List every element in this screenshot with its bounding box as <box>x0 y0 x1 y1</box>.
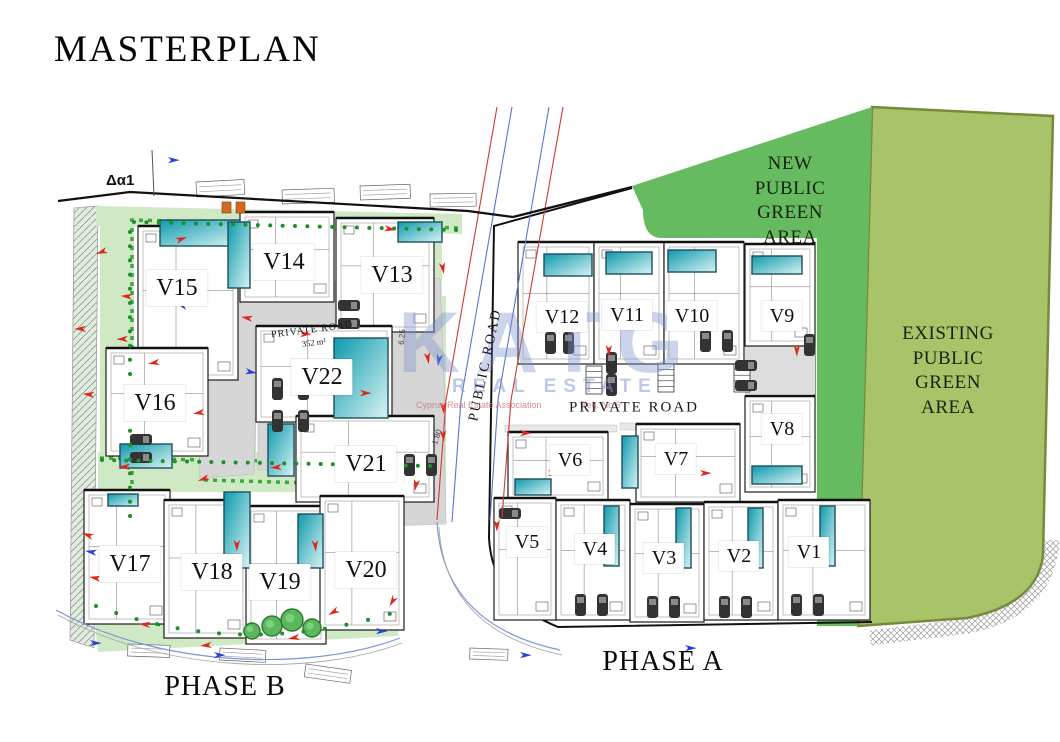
hedge-dot <box>268 223 272 227</box>
hedge-dot <box>259 632 263 636</box>
green-area-label-line: AREA <box>902 396 994 421</box>
villa-label-v15: V15 <box>146 270 207 306</box>
green-area-label-line: NEW <box>755 152 826 177</box>
hedge-dot <box>155 622 159 626</box>
car-icon <box>735 360 757 371</box>
hedge-dot <box>209 460 213 464</box>
hedge-dot <box>206 222 210 226</box>
villa-label-v16: V16 <box>124 385 185 421</box>
boundary-line <box>468 211 513 217</box>
car-icon <box>700 330 711 352</box>
survey-point-label: Δα1 <box>106 172 134 189</box>
survey-tag <box>196 179 245 196</box>
car-windshield <box>577 597 584 603</box>
green-area-label-line: PUBLIC <box>902 347 994 372</box>
swimming-pool <box>228 222 250 288</box>
car-icon <box>719 596 730 618</box>
villa-label-v8: V8 <box>762 414 802 444</box>
dimension-label-left: 6.25 <box>397 329 407 345</box>
swimming-pool <box>752 466 802 484</box>
survey-tag-box <box>430 193 476 207</box>
hedge-dot <box>128 429 132 433</box>
car-windshield <box>649 599 656 605</box>
new-public-green-area-label: NEWPUBLICGREENAREA <box>755 152 826 251</box>
car-icon <box>597 594 608 616</box>
villa-label-v20: V20 <box>335 552 396 588</box>
green-area-label-line: GREEN <box>902 371 994 396</box>
hedge-dot <box>124 458 128 462</box>
tree-icon <box>247 626 253 632</box>
phase-b-label: PHASE B <box>164 671 285 703</box>
car-icon <box>669 596 680 618</box>
hedge-dot <box>282 461 286 465</box>
page-title: MASTERPLAN <box>54 28 321 71</box>
hedge-dot <box>404 227 408 231</box>
hedge-dot <box>416 464 420 468</box>
hedge-dot <box>256 223 260 227</box>
swimming-pool <box>622 436 638 488</box>
villa-label-v4: V4 <box>575 534 615 564</box>
villa-label-v17: V17 <box>99 546 160 582</box>
survey-tag <box>304 664 351 683</box>
hedge-dot <box>355 226 359 230</box>
car-windshield <box>671 599 678 605</box>
hedge-dot <box>128 244 132 248</box>
tree-icon <box>286 614 295 623</box>
green-area-label-line: GREEN <box>755 201 826 226</box>
car-icon <box>804 334 815 356</box>
hedge-dot <box>331 462 335 466</box>
villa-label-v5: V5 <box>507 527 547 557</box>
planter-icon <box>222 202 231 213</box>
survey-tag-box <box>360 184 410 200</box>
hedge-dot <box>128 344 132 348</box>
hedge-dot <box>281 224 285 228</box>
hedge-dot <box>258 461 262 465</box>
survey-tag <box>470 648 508 660</box>
boundary-line <box>513 187 632 217</box>
swimming-pool <box>108 494 138 506</box>
hedge-dot <box>128 329 132 333</box>
hedge-dot <box>219 222 223 226</box>
car-windshield <box>702 333 709 339</box>
hedge-dot <box>94 604 98 608</box>
survey-tag-box <box>196 179 245 196</box>
swimming-pool <box>668 250 716 272</box>
hedge-dot <box>231 222 235 226</box>
hedge-dot <box>128 358 132 362</box>
hedge-dot <box>128 514 132 518</box>
tree-icon <box>306 622 313 629</box>
car-windshield <box>599 597 606 603</box>
hedge-dot <box>128 315 132 319</box>
car-windshield <box>300 413 307 419</box>
phase-a-private-road-label: PRIVATE ROAD <box>569 400 699 417</box>
villa-label-v21: V21 <box>335 446 396 482</box>
dimension-leader <box>152 150 154 196</box>
car-windshield <box>721 599 728 605</box>
hedge-dot <box>221 460 225 464</box>
car-windshield <box>428 457 435 463</box>
hedge-dot <box>128 471 132 475</box>
hedge-dot <box>294 462 298 466</box>
hedge-dot <box>301 630 305 634</box>
hedge-dot <box>100 458 104 462</box>
hedge-dot <box>176 626 180 630</box>
hedge-dot <box>319 462 323 466</box>
hedge-dot <box>136 459 140 463</box>
car-windshield <box>748 362 754 369</box>
hedge-dot <box>404 464 408 468</box>
swimming-pool <box>515 479 551 495</box>
tree-icon <box>266 620 274 628</box>
car-windshield <box>406 457 413 463</box>
car-icon <box>298 410 309 432</box>
car-windshield <box>351 302 357 309</box>
swimming-pool <box>544 254 592 276</box>
hedge-dot <box>380 226 384 230</box>
hedge-dot <box>417 227 421 231</box>
car-windshield <box>748 382 754 389</box>
planter-icon <box>236 202 245 213</box>
green-area-label-line: EXISTING <box>902 322 994 347</box>
hedge-dot <box>293 224 297 228</box>
hedge-dot <box>197 460 201 464</box>
hedge-dot <box>128 287 132 291</box>
villa-label-v22: V22 <box>291 359 352 395</box>
car-icon <box>272 410 283 432</box>
hedge-dot <box>144 220 148 224</box>
car-icon <box>575 594 586 616</box>
survey-tag <box>430 193 476 207</box>
car-icon <box>272 378 283 400</box>
villa-label-v6: V6 <box>550 445 590 475</box>
swimming-pool <box>298 514 323 568</box>
villa-label-v14: V14 <box>253 244 314 280</box>
hedge-dot <box>128 443 132 447</box>
car-windshield <box>743 599 750 605</box>
hedge-dot <box>429 227 433 231</box>
car-windshield <box>724 333 731 339</box>
car-icon <box>735 380 757 391</box>
hedge-dot <box>196 629 200 633</box>
hedge-dot <box>388 612 392 616</box>
hedge-dot <box>128 500 132 504</box>
survey-tag <box>360 184 410 200</box>
swimming-pool <box>752 256 802 274</box>
hedge-dot <box>114 611 118 615</box>
hedge-dot <box>246 461 250 465</box>
swimming-pool <box>398 222 442 242</box>
hedge-dot <box>128 372 132 376</box>
green-area-label-line: PUBLIC <box>755 177 826 202</box>
hedge-dot <box>161 459 165 463</box>
villa-label-v9: V9 <box>762 301 802 331</box>
hedge-dot <box>307 462 311 466</box>
hedge-dot <box>323 627 327 631</box>
existing-public-green-area-label: EXISTINGPUBLICGREENAREA <box>902 322 994 421</box>
survey-tag-box <box>470 648 508 660</box>
car-windshield <box>806 337 813 343</box>
car-windshield <box>143 454 149 461</box>
hedge-dot <box>442 228 446 232</box>
hedge-dot <box>194 222 198 226</box>
hedge-dot <box>367 226 371 230</box>
car-icon <box>647 596 658 618</box>
hedge-dot <box>305 224 309 228</box>
car-icon <box>338 300 360 311</box>
survey-tag <box>219 648 266 662</box>
car-icon <box>741 596 752 618</box>
car-icon <box>722 330 733 352</box>
hedge-dot <box>318 225 322 229</box>
hedge-dot <box>343 225 347 229</box>
villa-label-v13: V13 <box>361 257 422 293</box>
arrow-marker <box>168 157 180 163</box>
villa-label-v12: V12 <box>537 302 587 332</box>
hedge-dot <box>112 458 116 462</box>
hedge-dot <box>217 631 221 635</box>
villa-label-v19: V19 <box>249 564 310 600</box>
car-windshield <box>512 510 518 517</box>
hedge-dot <box>135 617 139 621</box>
survey-tag-box <box>219 648 266 662</box>
green-area-label-line: AREA <box>755 226 826 251</box>
hedge-dot <box>234 460 238 464</box>
hedge-dot <box>128 457 132 461</box>
hedge-dot <box>185 460 189 464</box>
car-windshield <box>143 436 149 443</box>
hedge-dot <box>132 220 136 224</box>
car-icon <box>130 434 152 445</box>
hedge-dot <box>280 632 284 636</box>
hedge-dot <box>344 623 348 627</box>
swimming-pool <box>606 252 652 274</box>
hedge-dot <box>128 258 132 262</box>
car-windshield <box>274 413 281 419</box>
car-windshield <box>274 381 281 387</box>
villa-label-v10: V10 <box>667 301 717 331</box>
car-windshield <box>793 597 800 603</box>
hedge-dot <box>128 230 132 234</box>
villa-label-v18: V18 <box>181 554 242 590</box>
villa-label-v3: V3 <box>644 543 684 573</box>
hedge-dot <box>243 223 247 227</box>
hedge-dot <box>173 459 177 463</box>
villa-label-v7: V7 <box>656 444 696 474</box>
villa-label-v2: V2 <box>719 541 759 571</box>
car-icon <box>791 594 802 616</box>
hedge-dot <box>330 225 334 229</box>
hedge-dot <box>238 632 242 636</box>
car-windshield <box>815 597 822 603</box>
hedge-dot <box>428 464 432 468</box>
hedge-dot <box>366 618 370 622</box>
hedge-dot <box>149 459 153 463</box>
hedge-dot <box>169 221 173 225</box>
hedge-dot <box>182 221 186 225</box>
car-icon <box>813 594 824 616</box>
hedge-dot <box>128 273 132 277</box>
hedge-dot <box>454 228 458 232</box>
phase-a-label: PHASE A <box>602 646 723 678</box>
masterplan-page: MASTERPLAN NEWPUBLICGREENAREA EXISTINGPU… <box>0 0 1060 742</box>
hedge-dot <box>270 461 274 465</box>
hedge-dot <box>157 221 161 225</box>
villa-label-v1: V1 <box>789 537 829 567</box>
hedge-dot <box>128 301 132 305</box>
hedge-dot <box>128 486 132 490</box>
arrow-marker <box>520 652 532 658</box>
villa-label-v11: V11 <box>602 300 652 330</box>
